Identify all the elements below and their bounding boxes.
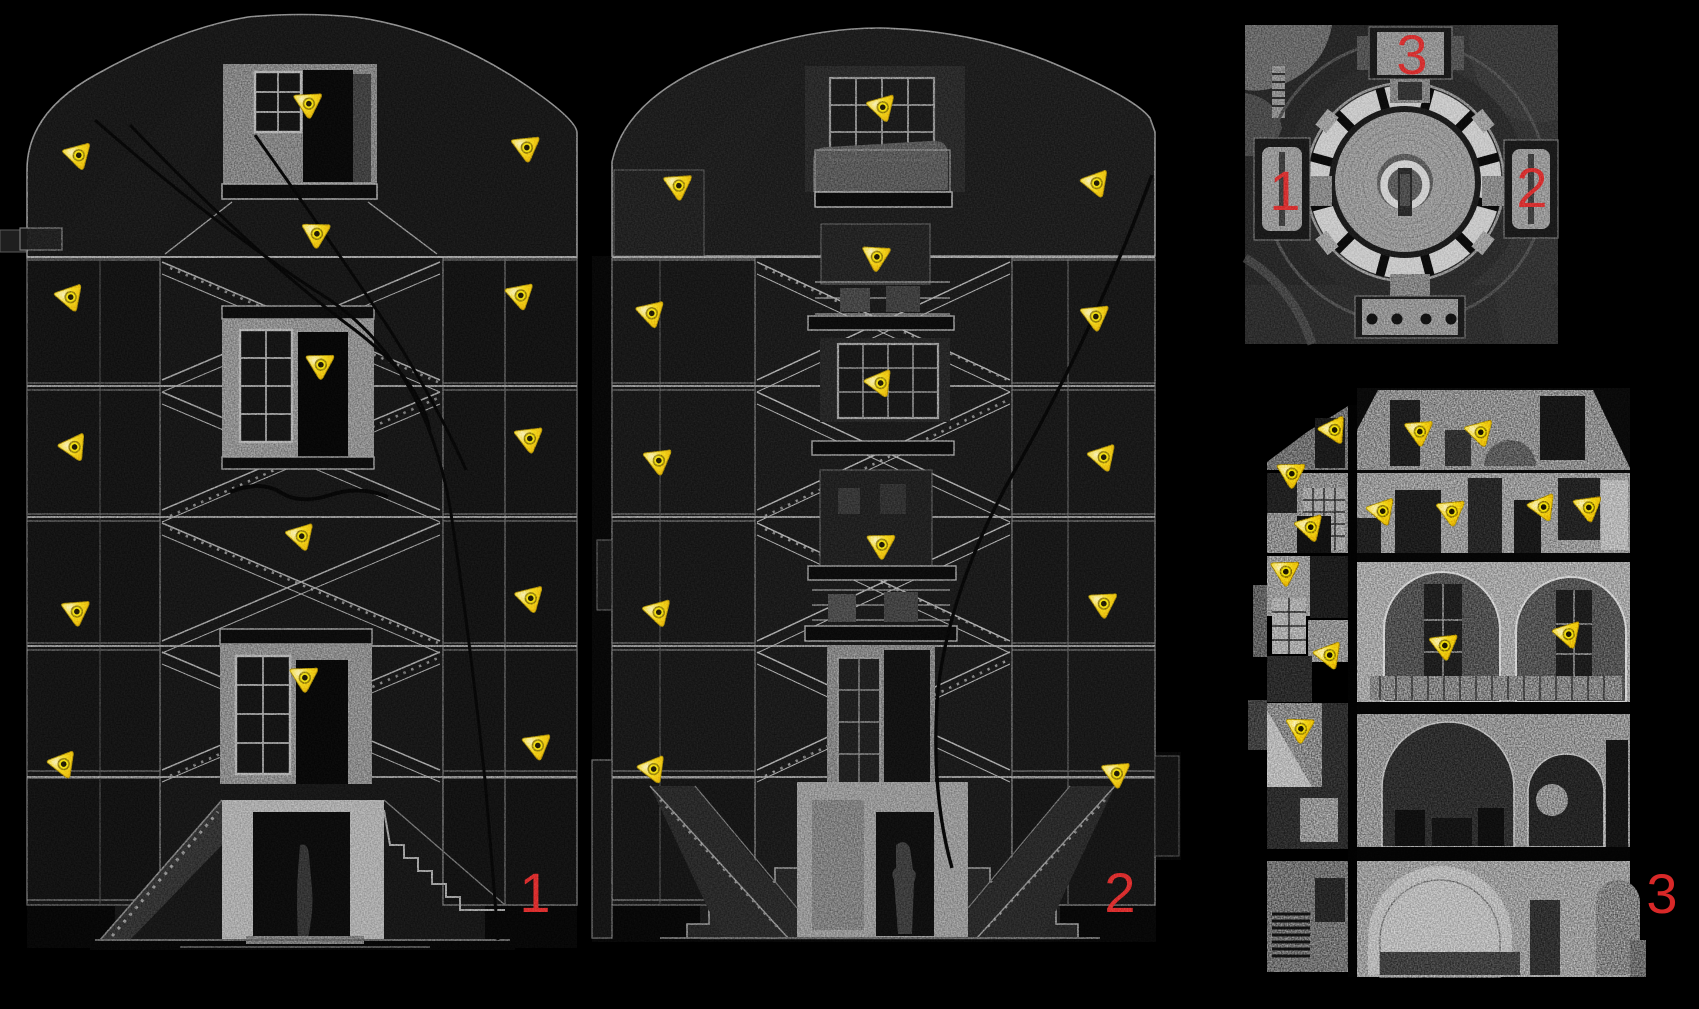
svg-text:3: 3: [1646, 862, 1677, 925]
